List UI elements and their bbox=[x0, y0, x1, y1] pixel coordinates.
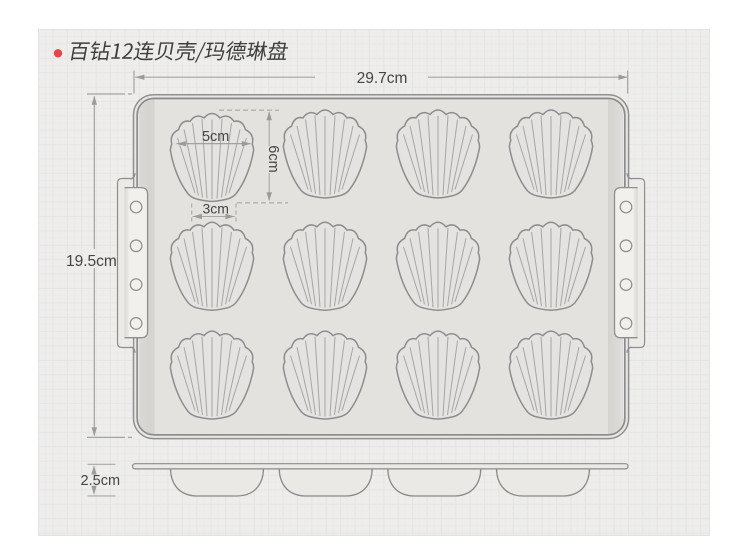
svg-text:6cm: 6cm bbox=[265, 145, 281, 172]
svg-text:29.7cm: 29.7cm bbox=[357, 70, 408, 87]
svg-text:2.5cm: 2.5cm bbox=[81, 473, 121, 489]
svg-text:3cm: 3cm bbox=[202, 200, 228, 216]
svg-text:19.5cm: 19.5cm bbox=[66, 253, 117, 270]
svg-text:5cm: 5cm bbox=[202, 129, 229, 145]
